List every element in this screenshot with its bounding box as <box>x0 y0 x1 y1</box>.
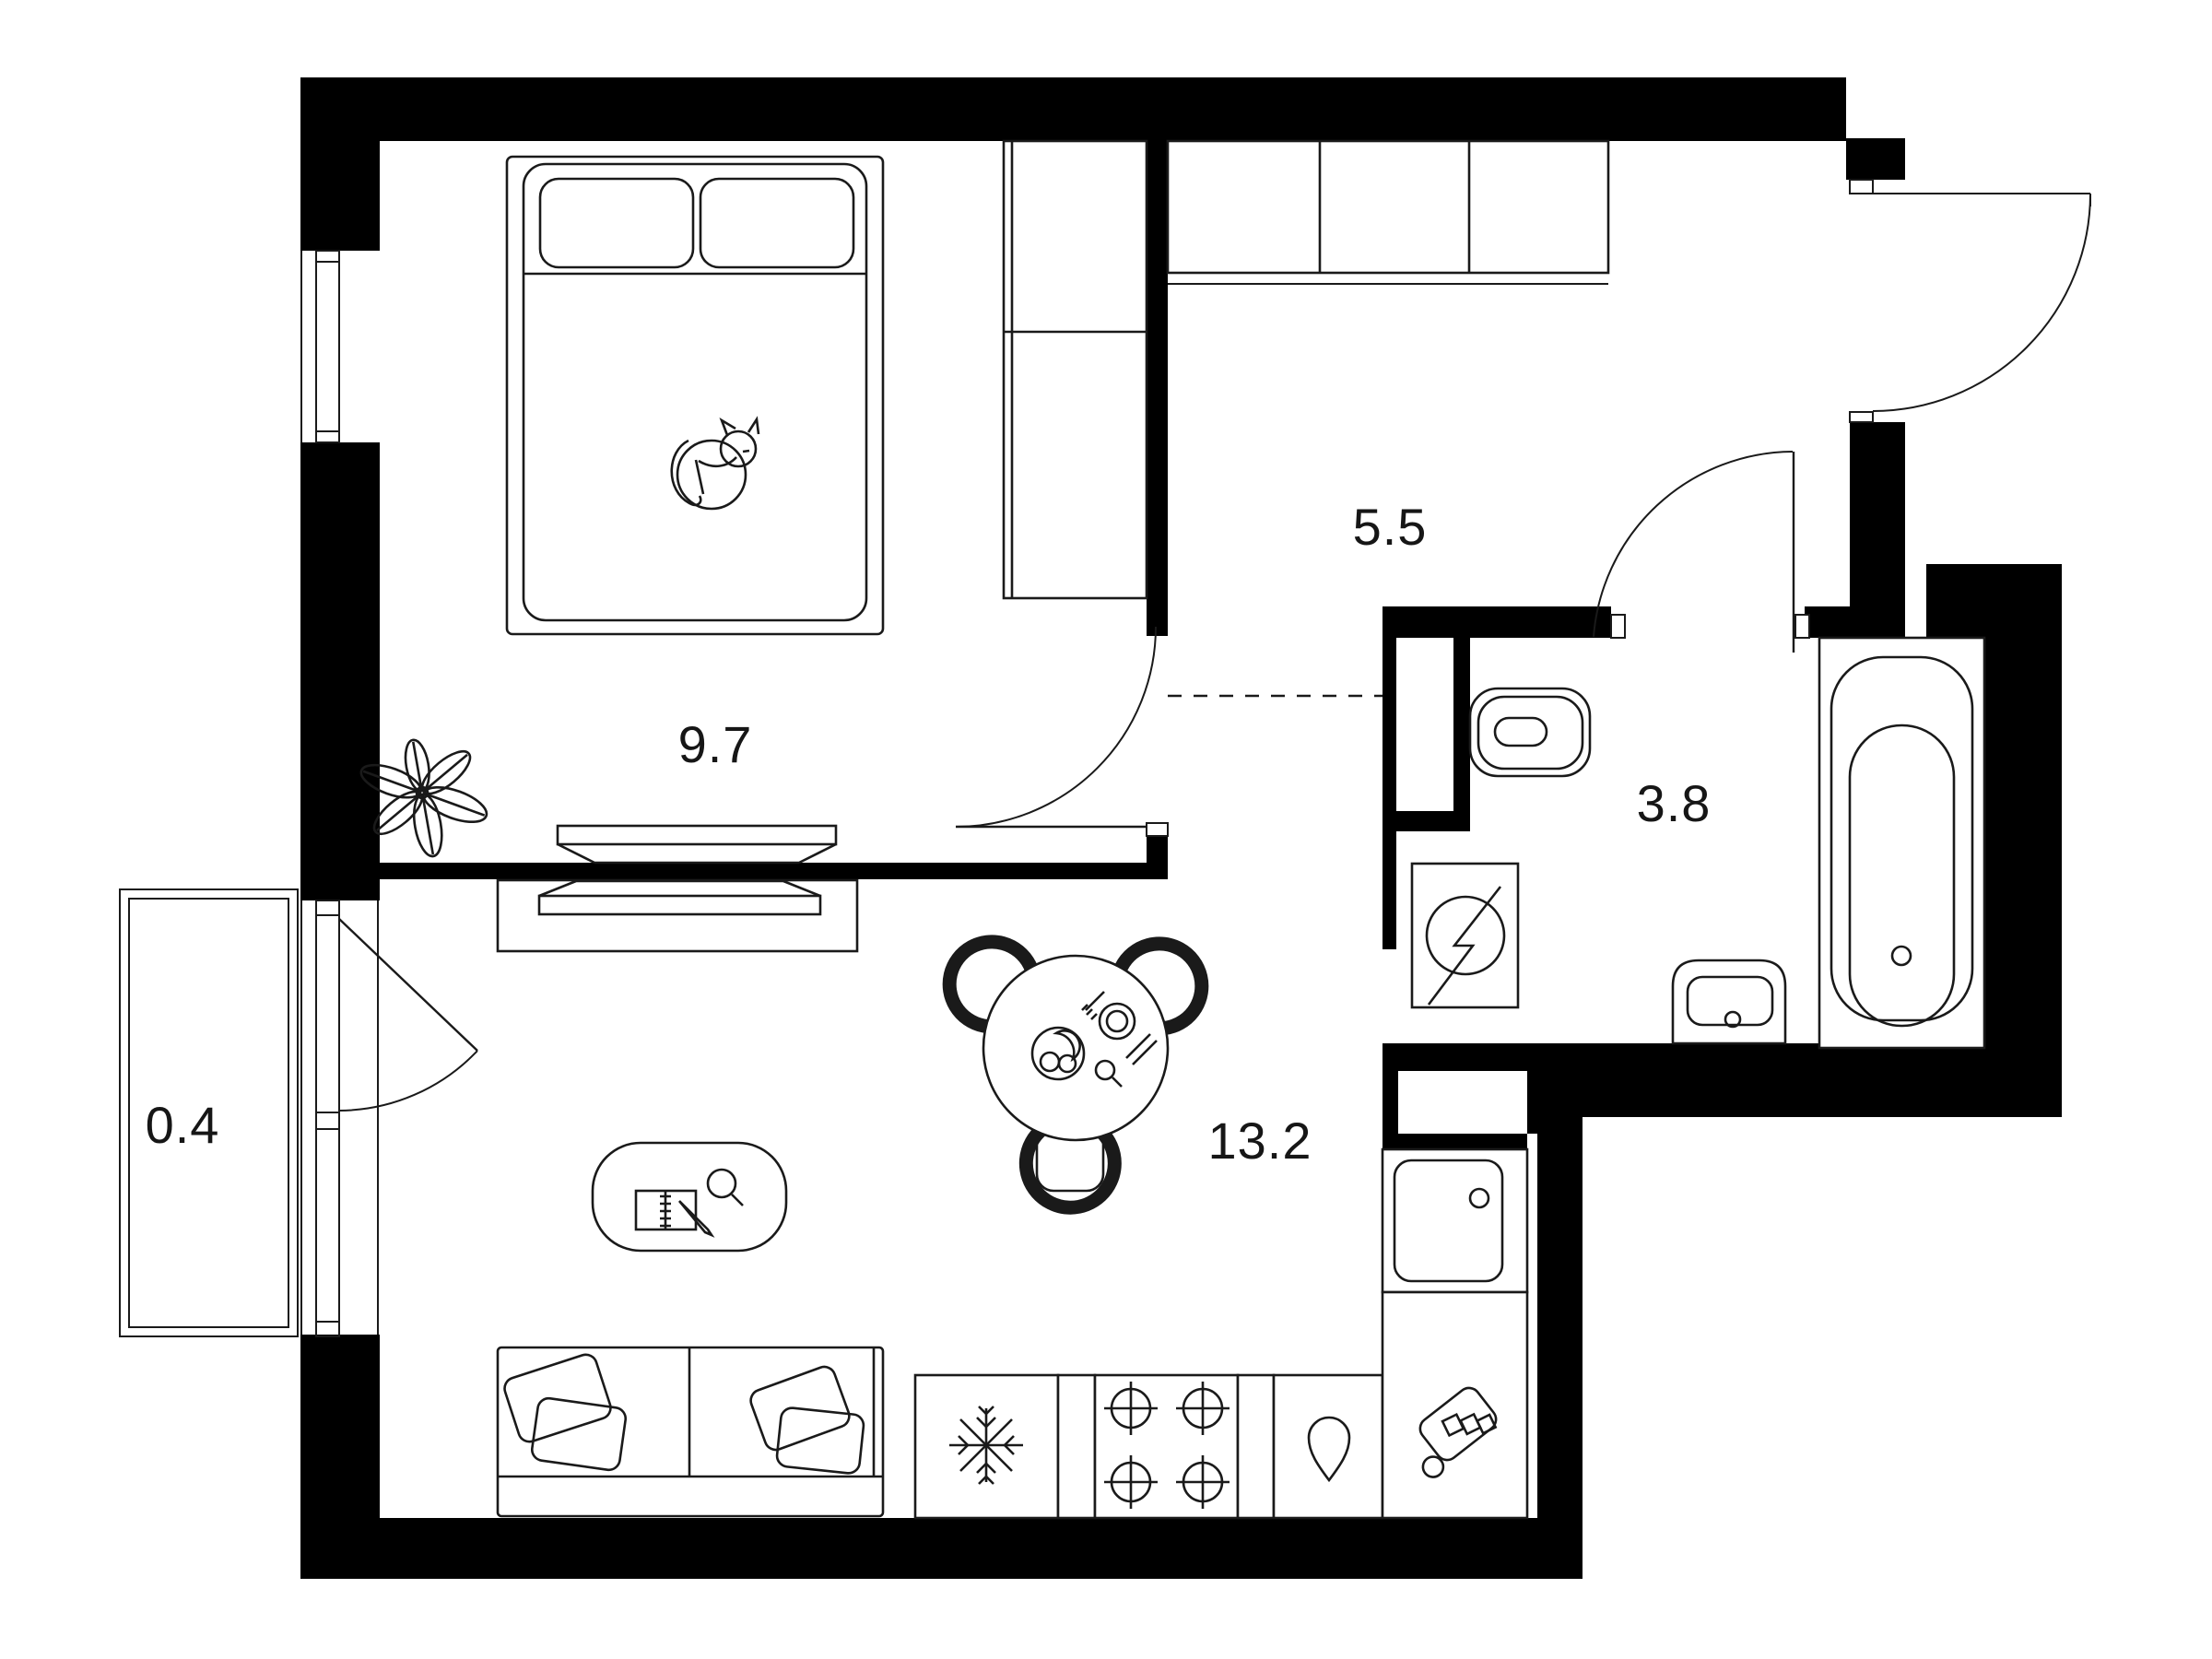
kitchen-cabinet <box>1238 1375 1274 1518</box>
bedroom-tv <box>558 826 836 863</box>
sofa <box>498 1347 883 1516</box>
wall-segment <box>1583 1043 2062 1117</box>
room-label-bedroom: 9.7 <box>678 715 753 773</box>
wall-segment <box>1527 1071 1537 1134</box>
door-jamb <box>1611 615 1625 638</box>
floor-plan: 9.7 5.5 3.8 13.2 0.4 <box>0 0 2212 1659</box>
wall-segment <box>1398 1134 1527 1149</box>
balcony-door-window-strip <box>301 900 477 1336</box>
wall-segment <box>376 863 1168 879</box>
room-label-balcony: 0.4 <box>146 1096 220 1154</box>
door-jamb <box>1795 615 1809 638</box>
entry-door-swing-arc <box>1873 194 2090 411</box>
wall-segment <box>1147 141 1168 636</box>
kitchen-sink-unit <box>1382 1149 1527 1292</box>
wall-segment <box>300 77 1846 141</box>
wall-segment <box>1382 638 1396 949</box>
wall-segment <box>1382 811 1470 831</box>
bedroom-door-swing-arc <box>956 627 1156 827</box>
wall-segment <box>1382 1071 1398 1149</box>
wall-segment <box>1453 638 1470 818</box>
bathtub <box>1819 638 1984 1048</box>
bathroom-door-swing-arc <box>1594 452 1793 637</box>
toilet <box>1470 688 1590 776</box>
wall-segment <box>1382 606 1611 638</box>
bedroom-wardrobe <box>1004 141 1147 598</box>
kitchen-column <box>1382 1149 1527 1518</box>
bathroom-sink <box>1673 960 1785 1043</box>
room-label-hallway: 5.5 <box>1353 498 1428 556</box>
kitchen-worktop <box>1382 1292 1527 1518</box>
entry-door <box>1850 180 2090 422</box>
wall-segment <box>1846 138 1905 180</box>
kitchen-counter-row <box>915 1375 1382 1518</box>
wall-segment <box>1382 1043 1583 1071</box>
hallway-cabinets <box>1168 141 1608 284</box>
room-label-living-kitchen: 13.2 <box>1208 1112 1312 1170</box>
wall-segment <box>300 442 380 900</box>
wall-segment <box>300 1518 1583 1579</box>
door-hinge-jamb <box>1147 823 1168 836</box>
wall-segment <box>1926 564 2062 638</box>
wall-segment <box>1537 1071 1583 1579</box>
door-jamb <box>1850 180 1873 194</box>
bedroom-window <box>301 251 339 442</box>
wall-segment <box>300 77 380 251</box>
dining-set <box>949 942 1202 1207</box>
washing-machine <box>1412 864 1518 1007</box>
dining-table <box>983 956 1168 1140</box>
bedroom-door <box>956 627 1168 836</box>
kitchen-sink-cabinet <box>1274 1375 1382 1518</box>
balcony-door-leaf <box>339 919 477 1051</box>
double-bed <box>507 157 883 634</box>
coffee-table <box>593 1143 786 1251</box>
door-jamb <box>1850 412 1873 422</box>
wall-segment <box>1805 606 1905 638</box>
kitchen-cabinet <box>1058 1375 1095 1518</box>
balcony-door-swing-arc <box>339 1051 477 1111</box>
room-label-bathroom: 3.8 <box>1637 774 1712 832</box>
wall-segment <box>1850 422 1905 638</box>
bathroom-door <box>1594 452 1809 653</box>
